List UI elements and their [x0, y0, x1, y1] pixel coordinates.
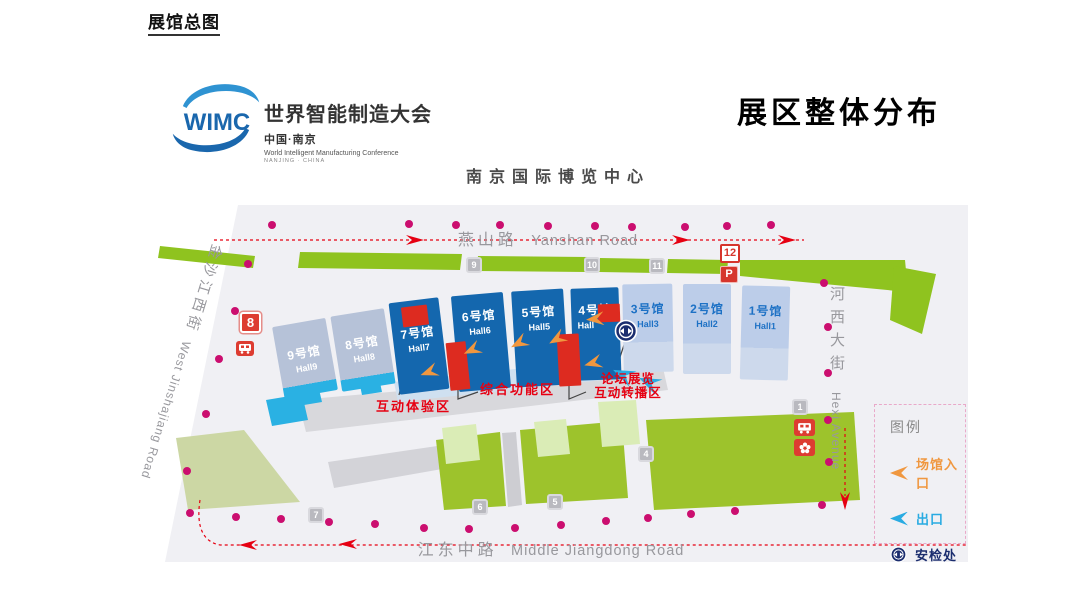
poster-title: 展区整体分布	[737, 88, 941, 132]
marker-badge-1: 1	[792, 399, 808, 415]
road-label-north: 燕山路 Yanshan Road	[398, 226, 698, 250]
marker-badge-7: 7	[308, 507, 324, 523]
logo-acronym: WIMC	[184, 109, 250, 136]
wimc-logo-icon: WIMC	[170, 78, 262, 160]
page: 展馆总图 WIMC 世界智能制造大会 中国·南京 World Intellige…	[0, 0, 1075, 598]
legend-item-exit: 出口	[890, 509, 965, 528]
legend-title: 图例	[890, 417, 965, 437]
map-ground	[148, 200, 973, 585]
zone-label-function: 综合功能区	[480, 379, 555, 398]
hall-2: 2号馆Hall2	[683, 284, 731, 374]
marker-badge-10: 10	[584, 257, 600, 273]
zone-label-forum: 论坛展览 互动转播区	[584, 372, 672, 401]
venue-title: 南京国际博览中心	[418, 163, 698, 187]
brand-text: 世界智能制造大会 中国·南京 World Intelligent Manufac…	[264, 98, 484, 164]
marker-badge-5: 5	[547, 494, 563, 510]
road-label-east: 河西大街 Hexi Avenue	[826, 286, 847, 471]
marker-badge-11: 11	[649, 258, 665, 274]
brand-location-cn: 中国·南京	[264, 131, 484, 147]
brand-name-cn: 世界智能制造大会	[264, 98, 484, 127]
bus-stop-badge-8: 8	[240, 312, 261, 333]
exit-arrow-icon	[890, 512, 908, 526]
road-label-south: 江东中路 Middle Jiangdong Road	[406, 536, 696, 560]
security-check-icon	[614, 319, 638, 343]
marker-badge-12: 12	[720, 244, 740, 263]
exhibition-map: 燕山路 Yanshan Road 江东中路 Middle Jiangdong R…	[148, 200, 973, 585]
bus-icon	[794, 419, 815, 436]
entrance-arrow-icon	[890, 466, 908, 480]
legend: 图例 场馆入口 出口 安检处	[874, 404, 966, 544]
legend-item-security: 安检处	[890, 545, 965, 564]
hall-8: 8号馆Hall8	[330, 308, 395, 392]
parking-icon: P	[720, 266, 738, 283]
security-check-icon	[890, 546, 907, 563]
brand-name-en: World Intelligent Manufacturing Conferen…	[264, 150, 484, 157]
hall-1: 1号馆Hall1	[740, 285, 790, 380]
legend-item-entrance: 场馆入口	[890, 454, 965, 492]
metro-icon	[794, 439, 815, 456]
zone-marker-hall7	[401, 304, 429, 327]
marker-badge-6: 6	[472, 499, 488, 515]
marker-badge-4: 4	[638, 446, 654, 462]
marker-badge-9: 9	[466, 257, 482, 273]
page-title: 展馆总图	[148, 8, 220, 36]
zone-label-interactive: 互动体验区	[376, 396, 451, 415]
bus-icon	[236, 341, 254, 356]
